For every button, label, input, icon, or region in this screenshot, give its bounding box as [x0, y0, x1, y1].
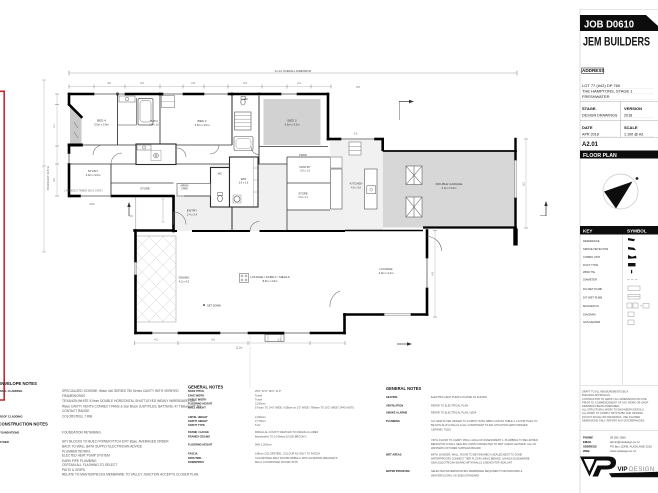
svg-text:25.0° 22.5° 18.0° 11.0°: 25.0° 22.5° 18.0° 11.0° — [255, 389, 281, 393]
svg-text:DOUBLE GARAGE: DOUBLE GARAGE — [436, 182, 463, 186]
svg-text:FLOOR PLAN: FLOOR PLAN — [583, 153, 617, 159]
svg-text:BED 4: BED 4 — [97, 119, 106, 123]
svg-text:REFERENCE: REFERENCE — [583, 239, 600, 243]
svg-text:2,200mm: 2,200mm — [255, 402, 266, 406]
svg-text:ADDRESS: ADDRESS — [583, 444, 597, 448]
svg-text:1:100 @ A2: 1:100 @ A2 — [624, 133, 643, 137]
svg-text:21.2m OVERALL DIMENSION: 21.2m OVERALL DIMENSION — [275, 69, 312, 73]
svg-text:3.6: 3.6 — [211, 339, 215, 342]
svg-text:SPOUTING: SPOUTING — [188, 456, 202, 460]
svg-text:DOWNPIPES: DOWNPIPES — [188, 460, 204, 464]
svg-text:PRIOR TO COMMENCEMENT OF ANY W: PRIOR TO COMMENCEMENT OF ANY WORK OR SHO… — [582, 400, 649, 404]
svg-text:STORE: STORE — [298, 192, 308, 196]
svg-text:DIMENSIONS ONLY. REPORT ANY DI: DIMENSIONS ONLY. REPORT ANY DISCREPANCIE… — [582, 418, 645, 422]
svg-text:WC: WC — [244, 98, 248, 101]
svg-text:WET AREAS: WET AREAS — [386, 452, 402, 456]
svg-text:BED 3: BED 3 — [288, 119, 297, 123]
svg-text:4.2 x 4.2: 4.2 x 4.2 — [179, 280, 190, 284]
svg-text:APR 2018: APR 2018 — [582, 133, 599, 137]
svg-text:4.0m: 4.0m — [89, 203, 95, 206]
svg-text:PWDR: PWDR — [299, 154, 307, 157]
svg-text:WATER PROOFING: WATER PROOFING — [386, 469, 410, 473]
svg-text:TEXANON WHITE 5.5mm DOUBLE HOR: TEXANON WHITE 5.5mm DOUBLE HORIZONTAL SH… — [62, 399, 195, 403]
svg-text:ALL WORK TO COMPLY WITH NZBC A: ALL WORK TO COMPLY WITH NZBC AND NZS3604… — [582, 411, 644, 415]
svg-text:PHONE: PHONE — [583, 435, 593, 439]
svg-text:FOUNDATION RETAINING.: FOUNDATION RETAINING. — [62, 431, 102, 435]
svg-text:BED 2: BED 2 — [198, 119, 207, 123]
svg-text:EARN PIPE PLUMBING: EARN PIPE PLUMBING — [62, 459, 97, 463]
svg-text:ALL NEW FLYER HINGED TO COMPLY: ALL NEW FLYER HINGED TO COMPLY WITH NZBC… — [431, 419, 537, 423]
svg-text:VINYL FLOOR TO CARRY 150mm HIG: VINYL FLOOR TO CARRY 150mm HIGH UP ASSES… — [431, 438, 538, 442]
svg-text:2,770mm: 2,770mm — [255, 419, 266, 423]
svg-text:SELECTED WATERPROOFING MEMBRAN: SELECTED WATERPROOFING MEMBRANE REQUIRED… — [431, 469, 523, 473]
svg-text:DH WET PLMB: DH WET PLMB — [583, 287, 602, 291]
svg-text:FRAME / GAUGE: FRAME / GAUGE — [188, 430, 209, 434]
svg-text:DIAGRAM: DIAGRAM — [583, 313, 596, 317]
svg-text:SOFFIT HEIGHT: SOFFIT HEIGHT — [188, 419, 208, 423]
svg-text:GABLE WIDTH: GABLE WIDTH — [188, 397, 206, 401]
svg-text:CPBD: CPBD — [181, 188, 188, 191]
svg-text:LOT 77 (#42) DP 760: LOT 77 (#42) DP 760 — [582, 83, 621, 88]
svg-text:ROOF PITCH: ROOF PITCH — [188, 389, 204, 393]
svg-text:PO Box 12345, AUCKLAND 1010: PO Box 12345, AUCKLAND 1010 — [610, 444, 652, 448]
svg-text:BOUNDARY 42.67m: BOUNDARY 42.67m — [46, 166, 50, 190]
svg-text:PLUMBING: PLUMBING — [386, 419, 400, 423]
svg-text:CERAMIC TILES: CERAMIC TILES — [431, 427, 451, 431]
svg-text:COLORSTEEL BALT ROUND 80/85mm: COLORSTEEL BALT ROUND 80/85mm WITH EXTER… — [255, 456, 338, 460]
svg-text:WC: WC — [218, 173, 222, 176]
svg-text:COMBO UNIT: COMBO UNIT — [583, 255, 601, 259]
svg-text:BENCHTOP & WALL SEALING JOINS: BENCHTOP & WALL SEALING JOINS CONNECTED … — [431, 442, 537, 446]
svg-text:1.8: 1.8 — [191, 82, 195, 85]
svg-text:DESIGN: DESIGN — [629, 466, 655, 473]
svg-text:OTHER: OTHER — [0, 440, 9, 444]
svg-text:DIAMETER: DIAMETER — [583, 277, 597, 281]
svg-text:09 555 1060: 09 555 1060 — [610, 435, 626, 439]
svg-text:BACK TO WALL BATH SUPPLY ELECT: BACK TO WALL BATH SUPPLY ELECTRICIAN ADV… — [62, 444, 142, 448]
svg-text:CONTACT RANGE: CONTACT RANGE — [62, 409, 89, 413]
svg-text:VIP: VIP — [618, 466, 628, 473]
svg-text:DRAFT TO ALL MEASUREMENTS BE A: DRAFT TO ALL MEASUREMENTS BE A — [582, 390, 628, 394]
svg-text:LOUNGE / FAMILY / MEALS: LOUNGE / FAMILY / MEALS — [250, 275, 289, 279]
svg-text:GENERAL NOTES: GENERAL NOTES — [188, 384, 223, 389]
svg-text:3.6m x 3.2m: 3.6m x 3.2m — [285, 123, 301, 127]
svg-text:SOFFIT TYPE: SOFFIT TYPE — [188, 423, 205, 427]
svg-text:SYMBOL: SYMBOL — [627, 229, 647, 234]
svg-text:6.0V: 6.0V — [255, 423, 261, 427]
svg-text:D/T WET PLMB: D/T WET PLMB — [583, 296, 602, 300]
svg-text:KITCHEN: KITCHEN — [350, 182, 363, 186]
svg-text:WIR: WIR — [241, 177, 246, 181]
svg-text:REFER TO ELECTRICAL PLAN, NZS4: REFER TO ELECTRICAL PLAN, NZS4 — [431, 411, 477, 415]
svg-text:VENTILATION: VENTILATION — [386, 403, 403, 407]
svg-text:ADDRESS: ADDRESS — [582, 68, 604, 73]
svg-text:SPECIALIZED SCHEME: Wave 440 S: SPECIALIZED SCHEME: Wave 440 SERIES 750 … — [62, 389, 179, 393]
svg-text:8.6m x 4.6m: 8.6m x 4.6m — [263, 279, 279, 283]
svg-text:PANTRY: PANTRY — [299, 165, 310, 169]
svg-text:RELATE TO MASTERPIECES MEMBRAN: RELATE TO MASTERPIECES MEMBRANE TO VALLE… — [62, 473, 199, 477]
svg-text:SMOKE ALARMS: SMOKE ALARMS — [386, 411, 407, 415]
svg-text:ENTRY: ENTRY — [187, 209, 197, 213]
svg-text:BUILDING APPROVALS.: BUILDING APPROVALS. — [582, 393, 611, 397]
svg-text:Brandmarks TO 0.5 Below 10,000: Brandmarks TO 0.5 Below 10,000 BROOM 1 — [255, 434, 307, 438]
svg-text:CONSTRUCTION NOTES: CONSTRUCTION NOTES — [0, 421, 48, 426]
svg-text:FRAMES CEILING: FRAMES CEILING — [188, 434, 210, 438]
svg-text:FRESHWATER: FRESHWATER — [582, 94, 610, 99]
svg-text:EAVE WIDTH: EAVE WIDTH — [188, 393, 204, 397]
svg-text:2.4: 2.4 — [297, 82, 301, 85]
svg-text:Travel: Travel — [255, 393, 263, 397]
svg-text:admin@vipdesign.co.nz: admin@vipdesign.co.nz — [610, 440, 640, 444]
svg-text:FASCIA: FASCIA — [188, 452, 198, 456]
svg-text:MAGNETICS: MAGNETICS — [583, 304, 599, 308]
svg-text:2.6: 2.6 — [140, 82, 144, 85]
svg-text:PARALLAL COUNTY DEVICES TO GWA: PARALLAL COUNTY DEVICES TO GWANG A LUMEX — [255, 430, 319, 434]
svg-text:WALL HEIGHT: WALL HEIGHT — [188, 406, 206, 410]
svg-text:LOUNGE: LOUNGE — [379, 267, 392, 271]
svg-text:GENERAL NOTES: GENERAL NOTES — [386, 386, 421, 391]
svg-text:KEY: KEY — [583, 229, 592, 234]
svg-text:2.6 x 1.3: 2.6 x 1.3 — [300, 170, 310, 173]
svg-text:www.vipdesign.co.nz: www.vipdesign.co.nz — [610, 449, 637, 453]
svg-text:90% 2,200mm: 90% 2,200mm — [255, 443, 272, 447]
svg-text:LINTEL HEIGHT: LINTEL HEIGHT — [188, 415, 208, 419]
svg-text:CONTRACTOR TO VERIFY ALL DIMEN: CONTRACTOR TO VERIFY ALL DIMENSIONS ON S… — [582, 397, 647, 401]
svg-text:Travel: Travel — [255, 397, 263, 401]
svg-text:PATIO & GRIPS: PATIO & GRIPS — [62, 468, 85, 472]
svg-text:A2.01: A2.01 — [582, 142, 599, 148]
svg-text:ROOF CLADDING: ROOF CLADDING — [0, 415, 23, 419]
svg-text:WINTERFLOORS, AS SEEN STANDARD: WINTERFLOORS, AS SEEN STANDARD — [431, 473, 479, 477]
svg-text:80mm COLORSTEEL ROUND 70/75: 80mm COLORSTEEL ROUND 70/75 — [255, 460, 298, 464]
svg-text:WASTERS FIXTURES SUPPLIES BOAR: WASTERS FIXTURES SUPPLIES BOARD — [431, 446, 481, 450]
svg-text:3.6m x 3.0m: 3.6m x 3.0m — [195, 123, 211, 127]
svg-text:3.1: 3.1 — [277, 339, 281, 342]
svg-text:4.2: 4.2 — [154, 339, 158, 342]
svg-text:CERTAIN ALL FLASHING TO SELECT: CERTAIN ALL FLASHING TO SELECT — [62, 463, 117, 467]
svg-text:REFER TO ELECTRICAL PLAN: REFER TO ELECTRICAL PLAN — [431, 403, 468, 407]
svg-text:3.0: 3.0 — [354, 133, 358, 136]
svg-text:2.6 x 1.6: 2.6 x 1.6 — [149, 124, 159, 127]
svg-text:12.2m: 12.2m — [236, 347, 243, 350]
svg-text:2,200mm: 2,200mm — [255, 415, 266, 419]
svg-text:Wave CAVITY VENTS CONNECT PANS: Wave CAVITY VENTS CONNECT PANS & Sun Blo… — [62, 404, 201, 408]
svg-text:168mm COLORSTEEL, COLOUR AS ON: 168mm COLORSTEEL, COLOUR AS ONLY TO FASC… — [255, 452, 320, 456]
svg-text:2.4 x 3.4: 2.4 x 3.4 — [187, 213, 198, 217]
svg-text:STAGE.: STAGE. — [582, 106, 597, 111]
svg-text:ELECTED HEAT PUMP SYSTEM: ELECTED HEAT PUMP SYSTEM — [62, 454, 110, 458]
svg-text:3.0: 3.0 — [107, 82, 111, 85]
svg-text:JOB D0610: JOB D0610 — [584, 18, 634, 30]
svg-text:BATH, DANGER, WALL, ROOM TO BE: BATH, DANGER, WALL, ROOM TO BE FINISHED … — [431, 452, 522, 456]
svg-text:WIND TIE: WIND TIE — [583, 270, 595, 274]
svg-text:FRAMEWORKS: FRAMEWORKS — [62, 394, 85, 398]
svg-text:5 Foam TO 14'0" WIDE / 10Bore: 5 Foam TO 14'0" WIDE / 10Bore on 1'0" WI… — [255, 406, 354, 410]
svg-text:GAS HEATER: GAS HEATER — [583, 320, 600, 324]
svg-text:3.4: 3.4 — [243, 82, 247, 85]
svg-text:FLOORING HEIGHT: FLOORING HEIGHT — [188, 402, 213, 406]
svg-text:SEAL ELECTRICIAN BOARD WITH WA: SEAL ELECTRICIAN BOARD WITH WALLS & BENC… — [431, 461, 513, 465]
svg-text:DUCT TYPE: DUCT TYPE — [583, 263, 598, 267]
svg-text:2.6 x 1.6: 2.6 x 1.6 — [239, 182, 249, 185]
svg-text:THE HAMPTONS, STAGE 1: THE HAMPTONS, STAGE 1 — [582, 89, 633, 94]
svg-text:ENVELOPE NOTES: ENVELOPE NOTES — [0, 381, 37, 386]
svg-text:COLORSTEEL 7 RIB: COLORSTEEL 7 RIB — [62, 415, 92, 419]
svg-text:1.6 x 1.1: 1.6 x 1.1 — [298, 196, 308, 199]
svg-text:FOUNDATIONS: FOUNDATIONS — [0, 431, 19, 435]
svg-text:DESIGN DRAWINGS: DESIGN DRAWINGS — [582, 114, 618, 118]
svg-text:JEM BUILDERS: JEM BUILDERS — [583, 37, 650, 49]
svg-text:STUDY: STUDY — [88, 169, 99, 173]
svg-text:5.8: 5.8 — [356, 86, 360, 89]
svg-text:HEATING: HEATING — [386, 395, 397, 399]
svg-text:WEB: WEB — [583, 449, 590, 453]
svg-text:SKY BLOCKS TO BUILD POWER PIT: SKY BLOCKS TO BUILD POWER PITCH EXIT Bas… — [62, 439, 169, 443]
svg-text:| ALFRESCO TIMBER DECK OVER |: | ALFRESCO TIMBER DECK OVER | — [65, 189, 104, 192]
svg-text:SET DOWN: SET DOWN — [207, 303, 221, 307]
svg-text:ALL STRUCTURAL WORK TO ENGINEE: ALL STRUCTURAL WORK TO ENGINEERS DETAILS… — [582, 408, 645, 412]
svg-text:WALL CLADDING: WALL CLADDING — [0, 389, 22, 393]
svg-text:DRAWINGS BEING PREPARED.: DRAWINGS BEING PREPARED. — [582, 404, 620, 408]
svg-text:2018: 2018 — [624, 114, 632, 118]
svg-text:BATH: BATH — [150, 119, 157, 123]
svg-text:WATERPROOFS CONNECT TIER FLOOR: WATERPROOFS CONNECT TIER FLOOR LINING BE… — [431, 457, 530, 461]
svg-text:3.0m x 3.6m: 3.0m x 3.6m — [94, 123, 110, 127]
svg-text:VERSION: VERSION — [624, 106, 642, 111]
svg-text:SCALE: SCALE — [624, 125, 638, 130]
svg-text:DINING: DINING — [179, 276, 190, 280]
svg-text:4.0m x 4.2m: 4.0m x 4.2m — [379, 271, 395, 275]
svg-text:DATE: DATE — [582, 125, 593, 130]
svg-text:SMOKE DETECTOR: SMOKE DETECTOR — [583, 247, 608, 251]
svg-text:STORE: STORE — [140, 187, 150, 191]
svg-text:BE NON-SLIP & WALLS & ALL COMP: BE NON-SLIP & WALLS & ALL COMPONENT TILI… — [431, 423, 528, 427]
svg-text:ELECTRIC HEAT PUMP LOCATED AS: ELECTRIC HEAT PUMP LOCATED AS SHOWN — [431, 395, 487, 399]
svg-text:EMAIL: EMAIL — [583, 440, 592, 444]
svg-text:4.0 x 3.0: 4.0 x 3.0 — [351, 186, 362, 190]
svg-text:DO NOT SCALE OFF DRAWINGS. USE: DO NOT SCALE OFF DRAWINGS. USE FIGURED — [582, 415, 640, 419]
svg-text:6.2m x 6.0m: 6.2m x 6.0m — [442, 186, 458, 190]
svg-text:3.0m x 3.0m: 3.0m x 3.0m — [86, 173, 102, 177]
svg-text:FLOORING HEIGHT: FLOORING HEIGHT — [188, 443, 213, 447]
